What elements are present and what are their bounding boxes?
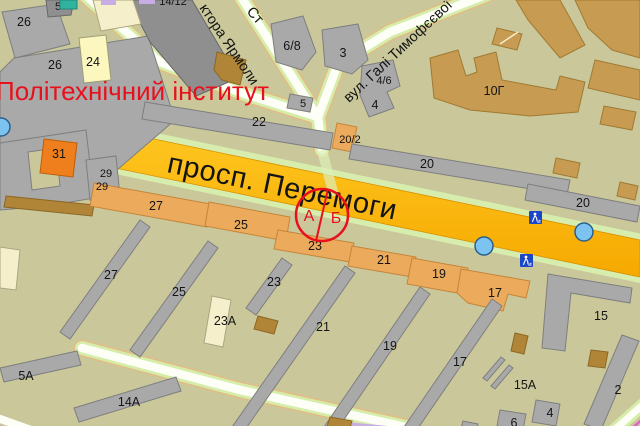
- lilac-block: [139, 0, 155, 4]
- building-label: 2: [615, 383, 622, 397]
- building-cream-left: [0, 247, 20, 290]
- building-label: 23А: [214, 314, 237, 328]
- building-label: 15: [594, 309, 608, 323]
- building-label: 15А: [514, 378, 537, 392]
- building-label: 17: [488, 286, 502, 300]
- building-label: 5: [300, 98, 306, 110]
- poi-label-institute: Політехнічний інститут: [0, 76, 269, 106]
- building-label: 20: [576, 196, 590, 210]
- building-label: 19: [383, 339, 397, 353]
- building-label: 27: [149, 199, 163, 213]
- marker-letter-b: Б: [331, 210, 342, 227]
- building-label: 25: [172, 285, 186, 299]
- stop-circle[interactable]: [575, 223, 593, 241]
- building-label: 6/8: [283, 39, 300, 53]
- building-label: 22: [252, 115, 266, 129]
- pedestrian-crossing-icon: [520, 254, 533, 267]
- marker-letter-a: А: [304, 208, 315, 225]
- pedestrian-crossing-icon: [529, 211, 542, 224]
- building-label: 6: [511, 416, 518, 426]
- building-label: 27: [104, 268, 118, 282]
- building-label: 4: [372, 98, 379, 112]
- building-label: 14/12: [159, 0, 187, 8]
- building-label: 25: [234, 218, 248, 232]
- building-label: 10Г: [484, 84, 505, 98]
- building-label: 29: [100, 168, 112, 180]
- building-label: 17: [453, 355, 467, 369]
- building-label: 26: [48, 58, 62, 72]
- building-label: 3: [340, 46, 347, 60]
- building-label: 26: [17, 15, 31, 29]
- lilac-block: [101, 0, 116, 5]
- map-viewport[interactable]: 26 5 26 24 14/12 6/8 3 4/6 4 5 22 20/2 2…: [0, 0, 640, 426]
- building-label: 23: [267, 275, 281, 289]
- building-label: 29: [96, 181, 108, 193]
- stop-circle[interactable]: [475, 237, 493, 255]
- building-label: 21: [316, 320, 330, 334]
- map-canvas[interactable]: 26 5 26 24 14/12 6/8 3 4/6 4 5 22 20/2 2…: [0, 0, 640, 426]
- building-label: 19: [432, 267, 446, 281]
- building-label: 20: [420, 157, 434, 171]
- building-label: 31: [52, 147, 66, 161]
- building-label: 21: [377, 253, 391, 267]
- building-label: 4: [547, 406, 554, 420]
- building-label: 20/2: [339, 134, 360, 146]
- building-label: 24: [86, 55, 100, 69]
- teal-block: [60, 0, 77, 9]
- building-label: 14А: [118, 395, 141, 409]
- building-brown-right: [588, 350, 608, 368]
- building-label: 5А: [18, 369, 34, 383]
